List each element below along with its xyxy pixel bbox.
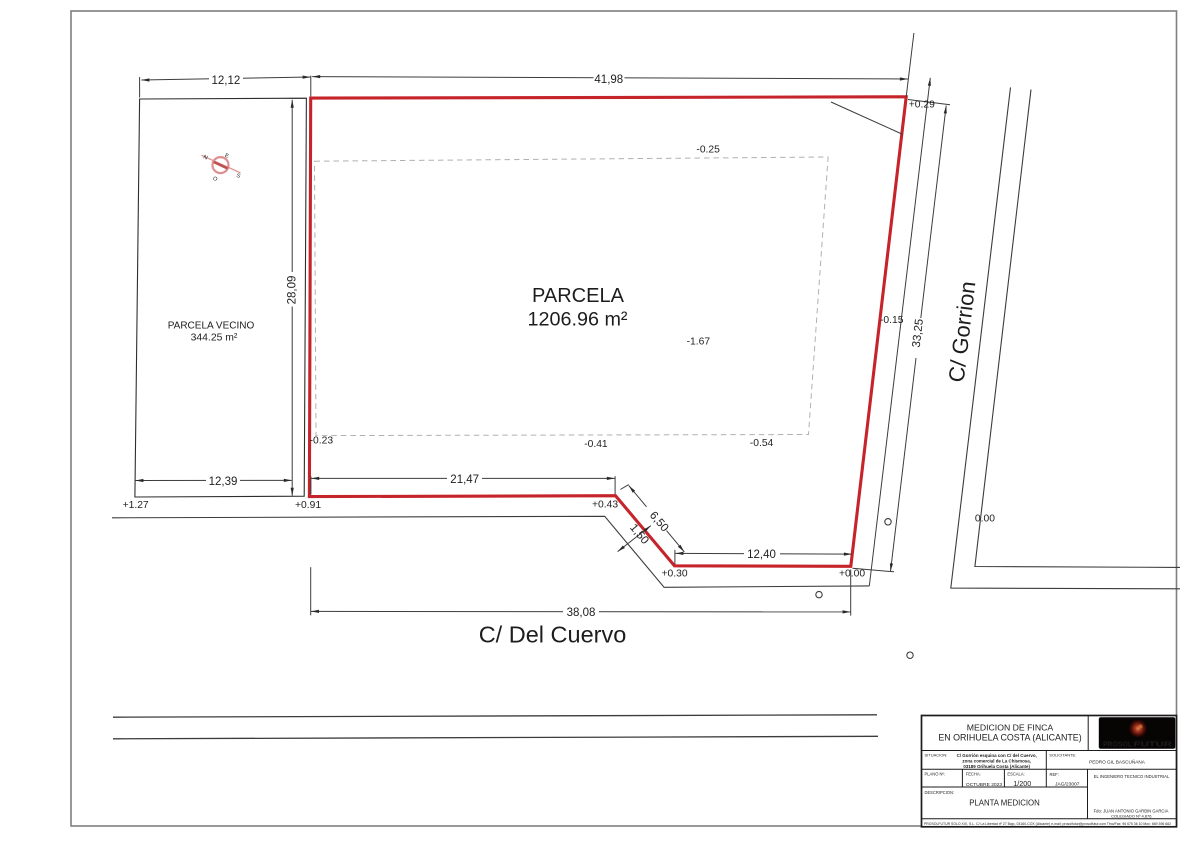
svg-text:+0.91: +0.91	[295, 500, 321, 511]
svg-text:-0.23: -0.23	[310, 435, 334, 446]
svg-text:-0.15: -0.15	[880, 315, 904, 326]
svg-text:+0.30: +0.30	[662, 569, 688, 580]
svg-text:C/ Gorrión esquina con C/ del: C/ Gorrión esquina con C/ del Cuervo,	[957, 753, 1037, 758]
svg-text:03189 Orihuela Costa (Alicante: 03189 Orihuela Costa (Alicante)	[963, 764, 1030, 769]
svg-text:+0.29: +0.29	[909, 99, 935, 110]
svg-text:PROSOLFUTUR SOLO XXI, S.L. C/: PROSOLFUTUR SOLO XXI, S.L. C/ La Liberta…	[924, 821, 1172, 826]
svg-text:1206.96 m²: 1206.96 m²	[527, 309, 627, 331]
svg-text:EL INGENIERO TECNICO INDUSTRIA: EL INGENIERO TECNICO INDUSTRIAL	[1094, 774, 1170, 779]
svg-text:-1.67: -1.67	[687, 337, 711, 348]
svg-text:-0.54: -0.54	[750, 438, 774, 449]
svg-text:-0.25: -0.25	[696, 145, 720, 156]
svg-text:PLANTA MEDICION: PLANTA MEDICION	[969, 798, 1040, 807]
svg-text:EN ORIHUELA COSTA (ALICANTE): EN ORIHUELA COSTA (ALICANTE)	[938, 732, 1081, 742]
svg-text:12,39: 12,39	[209, 476, 238, 488]
svg-text:1/200: 1/200	[1013, 779, 1031, 788]
svg-text:PEDRO GIL BASCUÑANA: PEDRO GIL BASCUÑANA	[1089, 759, 1146, 765]
svg-text:38,08: 38,08	[567, 607, 596, 619]
svg-text:REF:: REF:	[1050, 772, 1059, 777]
svg-text:ESCALA:: ESCALA:	[1007, 772, 1024, 777]
svg-text:OCTUBRE 2023: OCTUBRE 2023	[966, 782, 1002, 788]
svg-text:JAG/23007: JAG/23007	[1055, 782, 1080, 788]
svg-text:MEDICION DE FINCA: MEDICION DE FINCA	[967, 723, 1054, 733]
svg-text:21,47: 21,47	[450, 474, 479, 486]
svg-text:PARCELA: PARCELA	[532, 285, 625, 307]
svg-text:C/ Del Cuervo: C/ Del Cuervo	[479, 621, 627, 647]
svg-text:41,98: 41,98	[594, 74, 623, 86]
svg-text:+1.27: +1.27	[123, 500, 149, 511]
svg-text:+0.00: +0.00	[839, 569, 865, 580]
svg-text:SOLICITANTE:: SOLICITANTE:	[1049, 753, 1076, 758]
svg-text:PARCELA VECINO: PARCELA VECINO	[168, 320, 255, 331]
svg-text:DESCRIPCION:: DESCRIPCION:	[925, 790, 955, 795]
svg-text:+0.43: +0.43	[592, 500, 618, 511]
svg-text:12,40: 12,40	[747, 549, 776, 561]
svg-text:12,12: 12,12	[212, 75, 241, 87]
svg-text:PROSOL: PROSOL	[1103, 739, 1132, 748]
svg-text:PLANO Nº:: PLANO Nº:	[925, 772, 946, 777]
svg-text:0.00: 0.00	[975, 514, 995, 525]
svg-text:FUTUR: FUTUR	[1134, 739, 1174, 748]
svg-text:-0.41: -0.41	[584, 439, 608, 450]
svg-text:344.25 m²: 344.25 m²	[191, 332, 238, 343]
svg-text:SITUACION:: SITUACION:	[925, 753, 948, 758]
svg-text:28,09: 28,09	[286, 276, 298, 305]
svg-text:COLEGIADO Nº 4.876: COLEGIADO Nº 4.876	[1111, 813, 1152, 818]
svg-text:FECHA:: FECHA:	[966, 772, 981, 777]
